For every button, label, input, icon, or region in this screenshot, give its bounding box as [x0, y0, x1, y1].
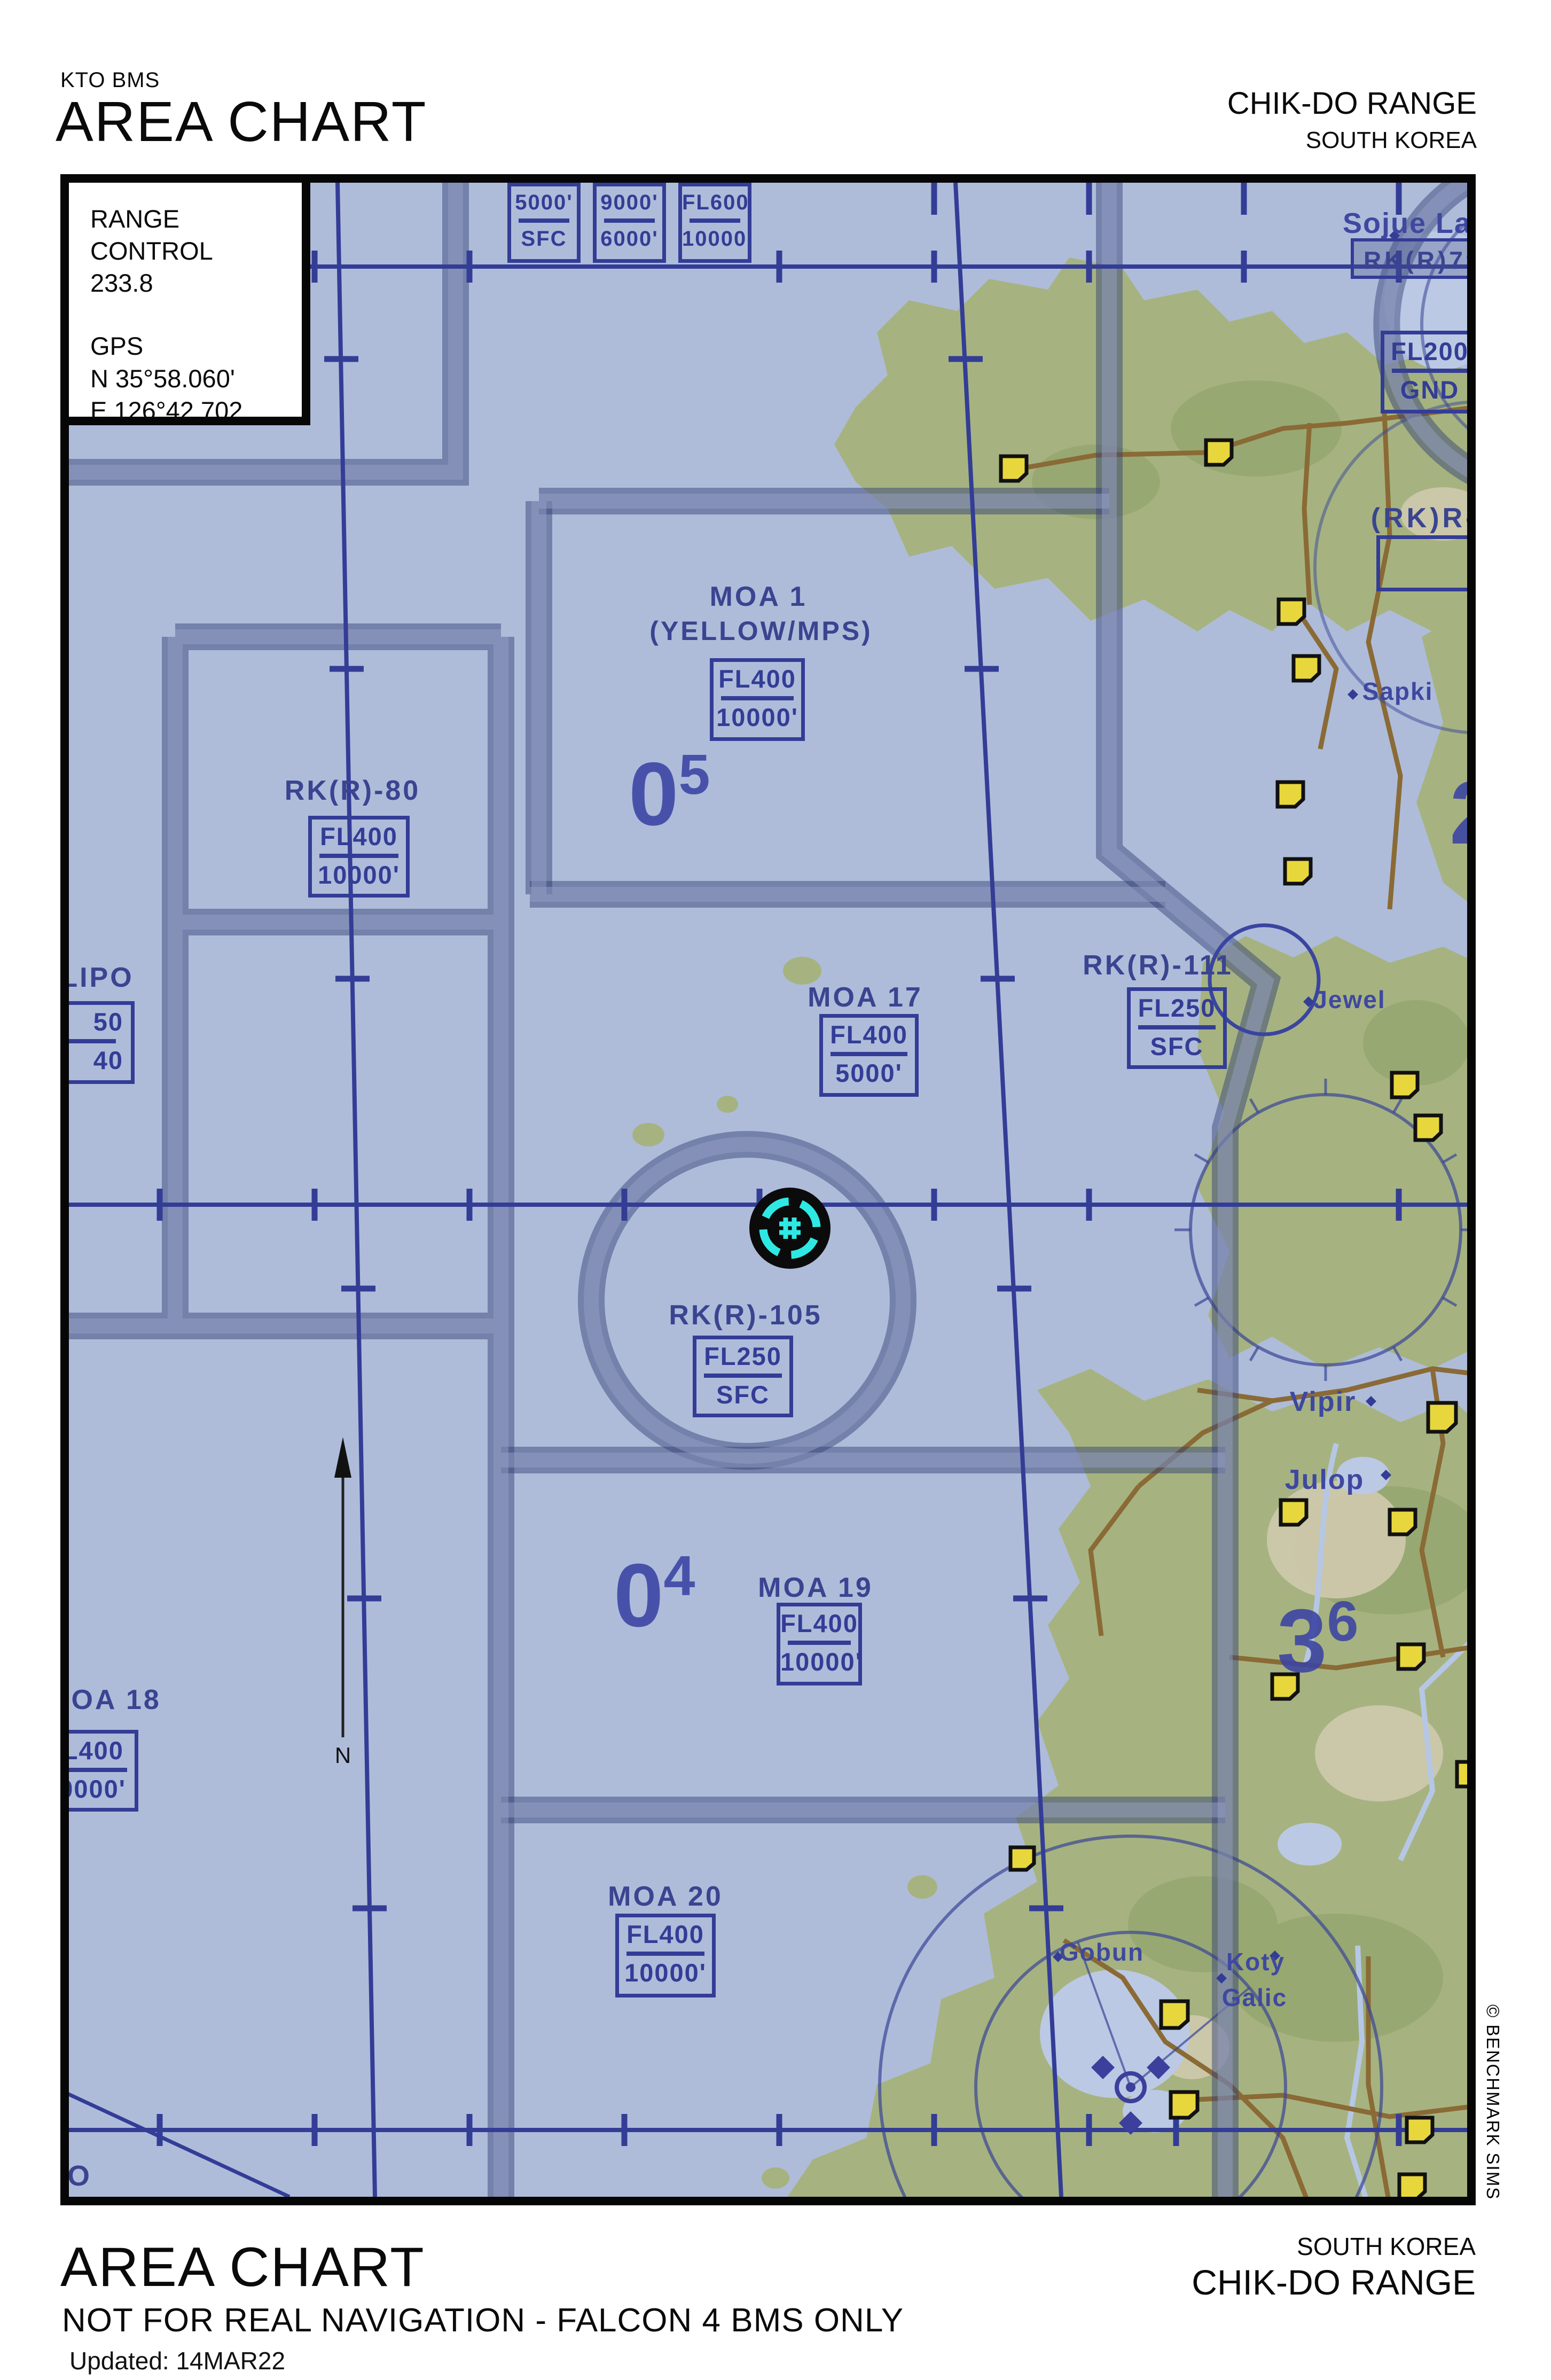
altitude-lower: 10000': [619, 1956, 712, 1990]
chart-map: 5000' SFC 9000' 6000' FL600 10000' MOA 1…: [60, 174, 1476, 2205]
altitude-lower: 10000': [60, 1772, 135, 1806]
altitude-upper: 9000': [597, 186, 662, 219]
town-label-vipir: Vipir: [1290, 1386, 1357, 1418]
info-gps-label: GPS: [90, 330, 302, 362]
altitude-upper: FL200: [1384, 334, 1475, 369]
altitude-lower: 10000': [682, 223, 748, 255]
footer-disclaimer: NOT FOR REAL NAVIGATION - FALCON 4 BMS O…: [62, 2301, 904, 2339]
grid-ref-2: 2: [1450, 768, 1476, 857]
partial-box-rkr79: [1376, 535, 1476, 591]
grid-ref-36: 36: [1277, 1593, 1358, 1685]
zone-label-moa17: MOA 17: [808, 981, 923, 1013]
header-range-name: CHIK-DO RANGE: [1227, 85, 1477, 121]
altitude-upper: FL400: [714, 662, 801, 696]
altitude-lower: 10000': [780, 1645, 858, 1679]
info-frequency: 233.8: [90, 267, 302, 299]
partial-label: O: [67, 2159, 92, 2192]
page-title: AREA CHART: [56, 90, 427, 154]
altitude-upper: FL400: [619, 1917, 712, 1952]
zone-label-moa18: MOA 18: [60, 1684, 161, 1716]
zone-label-rkr105: RK(R)-105: [669, 1299, 822, 1331]
footer-title: AREA CHART: [60, 2236, 425, 2299]
altitude-box: FL600 10000': [678, 183, 751, 263]
zone-label-rkr79a: RK(R)79A&: [1364, 246, 1476, 275]
zone-label-moa1: MOA 1: [710, 581, 808, 613]
altitude-lower: GND: [1384, 373, 1475, 407]
zone-label-rkr80: RK(R)-80: [285, 775, 420, 807]
altitude-box-moa18: FL400 10000': [60, 1730, 138, 1812]
footer-range-name: CHIK-DO RANGE: [1192, 2262, 1476, 2303]
altitude-lower: SFC: [1131, 1029, 1223, 1064]
north-arrow-icon: [334, 1437, 351, 1737]
zone-sublabel-moa1: (YELLOW/MPS): [649, 615, 872, 646]
altitude-box: 9000' 6000': [593, 183, 666, 263]
zone-banner-rkr79a: RK(R)79A&: [1351, 238, 1476, 279]
grid-ref-big: 3: [1277, 1590, 1327, 1691]
zone-label-lipo: LIPO: [60, 962, 134, 994]
info-lon: E 126°42.702: [90, 395, 302, 427]
altitude-lower: SFC: [696, 1378, 789, 1412]
program-name: KTO BMS: [60, 68, 160, 92]
altitude-upper: 50: [60, 1005, 123, 1039]
altitude-box-moa1: FL400 10000': [710, 658, 805, 741]
altitude-upper: FL400: [312, 820, 406, 854]
altitude-box-moa20: FL400 10000': [615, 1914, 716, 1997]
altitude-lower: 10000': [312, 858, 406, 892]
altitude-lower: 5000': [823, 1056, 915, 1090]
altitude-upper: FL400: [823, 1018, 915, 1052]
altitude-upper: FL250: [1131, 991, 1223, 1025]
altitude-box-rkr79: FL200 GND: [1381, 331, 1476, 413]
target-icon: [749, 1188, 831, 1269]
grid-ref-04: 04: [614, 1548, 695, 1640]
zone-label-rkr79: (RK)R-79: [1371, 502, 1476, 534]
zone-label-moa20: MOA 20: [608, 1880, 723, 1913]
altitude-lower: 10000': [714, 700, 801, 735]
altitude-box-moa19: FL400 10000': [777, 1603, 862, 1685]
copyright-text: © BENCHMARK SIMS: [1483, 2004, 1503, 2218]
altitude-lower: SFC: [511, 223, 577, 255]
altitude-box: 5000' SFC: [507, 183, 581, 263]
altitude-upper: FL250: [696, 1339, 789, 1374]
altitude-box-rkr105: FL250 SFC: [693, 1336, 793, 1417]
altitude-box-rkr80: FL400 10000': [308, 816, 410, 898]
altitude-lower: 6000': [597, 223, 662, 255]
map-canvas: [69, 183, 1467, 2197]
grid-ref-big: 0: [614, 1545, 663, 1645]
range-control-info-box: RANGE CONTROL 233.8 GPS N 35°58.060' E 1…: [60, 174, 310, 425]
grid-ref-big: 2: [1450, 762, 1476, 863]
altitude-lower: 40: [60, 1043, 123, 1078]
altitude-upper: 5000': [511, 186, 577, 219]
town-label-galic: Galic: [1222, 1983, 1288, 2012]
town-label-sapki: Sapki: [1362, 677, 1433, 706]
town-label-koty: Koty: [1226, 1947, 1285, 1976]
altitude-box-rkr111: FL250 SFC: [1127, 987, 1227, 1069]
header-country: SOUTH KOREA: [1306, 127, 1477, 154]
area-chart-page: KTO BMS AREA CHART CHIK-DO RANGE SOUTH K…: [0, 0, 1551, 2380]
footer-updated: Updated: 14MAR22: [69, 2346, 285, 2375]
altitude-box-lipo: 50 40: [60, 1001, 135, 1084]
grid-ref-sup: 6: [1327, 1590, 1358, 1653]
town-label-julop: Julop: [1285, 1464, 1365, 1496]
town-label-gobun: Gobun: [1060, 1938, 1144, 1967]
altitude-upper: FL400: [780, 1606, 858, 1641]
altitude-upper: FL600: [682, 186, 748, 219]
altitude-upper: FL400: [60, 1734, 135, 1768]
town-label-sojue: Sojue Lag: [1343, 207, 1476, 240]
grid-ref-05: 05: [629, 746, 710, 839]
info-lat: N 35°58.060': [90, 363, 302, 395]
altitude-box-moa17: FL400 5000': [819, 1014, 919, 1097]
grid-ref-sup: 5: [678, 743, 710, 806]
zone-label-rkr111: RK(R)-111: [1083, 949, 1233, 981]
north-label: N: [335, 1743, 351, 1768]
grid-ref-big: 0: [629, 744, 678, 844]
info-title: RANGE CONTROL: [90, 203, 302, 267]
footer-country: SOUTH KOREA: [1297, 2232, 1476, 2261]
town-label-jewel: Jewel: [1313, 985, 1385, 1014]
zone-label-moa19: MOA 19: [758, 1572, 873, 1604]
grid-ref-sup: 4: [663, 1544, 695, 1608]
